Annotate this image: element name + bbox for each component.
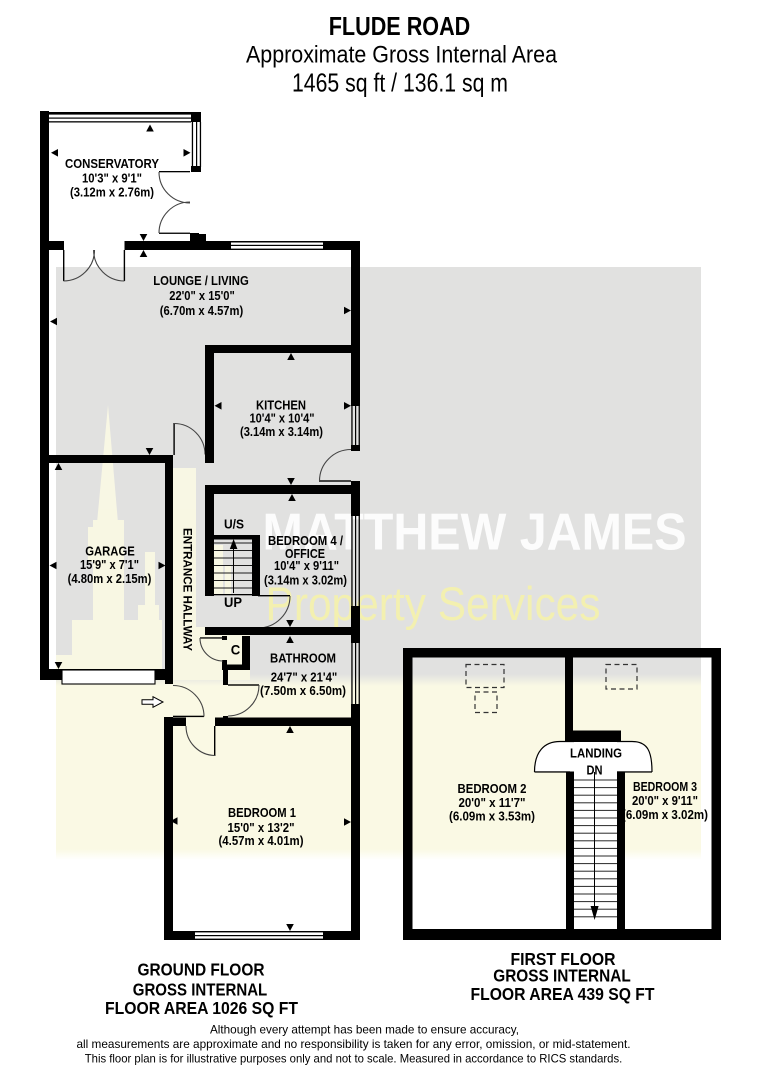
svg-text:15'9" x 7'1": 15'9" x 7'1" (80, 557, 139, 572)
svg-text:FLOOR AREA 1026 SQ FT: FLOOR AREA 1026 SQ FT (105, 998, 298, 1018)
svg-text:1465 sq ft / 136.1 sq m: 1465 sq ft / 136.1 sq m (292, 68, 508, 98)
svg-text:GROSS INTERNAL: GROSS INTERNAL (493, 966, 631, 986)
svg-text:DN: DN (587, 763, 603, 778)
svg-text:UP: UP (224, 595, 242, 610)
svg-text:FLUDE ROAD: FLUDE ROAD (329, 11, 471, 41)
svg-text:(4.80m x 2.15m): (4.80m x 2.15m) (68, 571, 152, 586)
svg-text:(3.14m x 3.14m): (3.14m x 3.14m) (240, 424, 323, 439)
svg-text:22'0" x 15'0": 22'0" x 15'0" (169, 288, 235, 303)
svg-text:GROSS INTERNAL: GROSS INTERNAL (133, 980, 268, 1000)
svg-text:(4.57m x 4.01m): (4.57m x 4.01m) (219, 833, 304, 848)
svg-text:BATHROOM: BATHROOM (270, 651, 336, 666)
svg-text:(3.14m x 3.02m): (3.14m x 3.02m) (264, 573, 347, 588)
svg-text:LANDING: LANDING (570, 746, 622, 761)
svg-text:(3.12m x 2.76m): (3.12m x 2.76m) (70, 185, 154, 200)
svg-text:(7.50m x 6.50m): (7.50m x 6.50m) (260, 683, 346, 698)
svg-text:BEDROOM 2: BEDROOM 2 (458, 781, 527, 796)
svg-text:FLOOR AREA 439 SQ FT: FLOOR AREA 439 SQ FT (471, 984, 655, 1004)
svg-text:BEDROOM 1: BEDROOM 1 (228, 805, 296, 820)
svg-text:BEDROOM 3: BEDROOM 3 (633, 779, 697, 794)
svg-text:(6.70m x 4.57m): (6.70m x 4.57m) (160, 303, 244, 318)
svg-text:20'0" x 9'11": 20'0" x 9'11" (632, 793, 698, 808)
svg-text:LOUNGE / LIVING: LOUNGE / LIVING (153, 273, 249, 288)
svg-text:ENTRANCE HALLWAY: ENTRANCE HALLWAY (181, 528, 195, 651)
svg-text:Approximate Gross Internal Are: Approximate Gross Internal Area (246, 42, 558, 69)
svg-text:(6.09m x 3.02m): (6.09m x 3.02m) (622, 807, 708, 822)
svg-text:GROUND FLOOR: GROUND FLOOR (138, 960, 265, 980)
svg-text:U/S: U/S (224, 517, 244, 532)
svg-text:(6.09m x 3.53m): (6.09m x 3.53m) (449, 809, 535, 824)
svg-text:Although every attempt has bee: Although every attempt has been made to … (210, 1023, 519, 1037)
svg-text:C: C (231, 643, 241, 658)
svg-text:This floor plan is for illustr: This floor plan is for illustrative purp… (85, 1052, 623, 1066)
svg-text:CONSERVATORY: CONSERVATORY (65, 156, 159, 171)
svg-text:all measurements are approxima: all measurements are approximate and no … (77, 1037, 631, 1051)
svg-text:10'4" x 9'11": 10'4" x 9'11" (274, 558, 339, 573)
svg-text:10'3" x 9'1": 10'3" x 9'1" (82, 171, 142, 186)
